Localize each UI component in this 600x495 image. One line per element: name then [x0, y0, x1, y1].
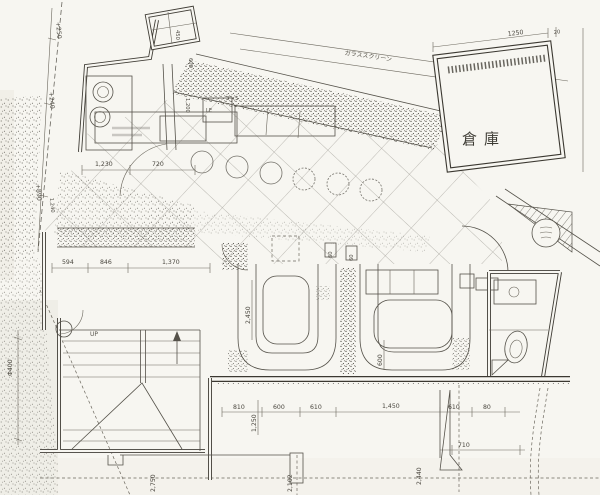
up-label: UP	[90, 331, 98, 338]
dim-2440: 2,440	[416, 467, 423, 485]
dim-600c: 600	[273, 404, 285, 411]
dim-1230: 1,230	[95, 161, 113, 168]
size-label: 3'×5	[226, 96, 238, 102]
dim-plus250: +250	[54, 22, 62, 40]
floor-plan-svg: LE 3'×5 ガラススクリーン 倉庫	[0, 0, 600, 495]
dim-plus240: +240	[47, 92, 55, 110]
warehouse-label: 倉庫	[462, 130, 506, 148]
dim-1250b: 1,250	[251, 414, 258, 432]
dim-610a: 610	[310, 404, 322, 411]
dim-2750: 2,750	[150, 474, 157, 492]
dim-1200: 1,200	[184, 98, 190, 113]
dim-20: 20	[554, 29, 561, 36]
dim-720: 720	[152, 161, 164, 168]
dim-1370: 1,370	[162, 259, 180, 266]
dim-1450: 1,450	[382, 403, 400, 410]
dim-450: 450	[174, 30, 180, 40]
dim-60b: 60	[349, 254, 355, 261]
dim-810: 810	[233, 404, 245, 411]
dim-610b: 610	[448, 404, 460, 411]
dim-phi400: Φ400	[7, 359, 14, 376]
dim-594: 594	[62, 259, 74, 266]
dim-2102: 2,102	[287, 474, 294, 492]
dim-2450: 2,450	[245, 306, 252, 324]
scanned-floor-plan: LE 3'×5 ガラススクリーン 倉庫	[0, 0, 600, 495]
dim-80: 80	[483, 404, 491, 411]
dim-600b: 600	[377, 354, 384, 366]
dim-plus890: +890	[34, 184, 42, 202]
column-hatched	[340, 268, 356, 374]
dim-600a: 600	[187, 58, 193, 68]
dim-60a: 60	[328, 251, 334, 258]
le-label: LE	[206, 108, 212, 114]
dim-846: 846	[100, 259, 112, 266]
dim-710: 710	[458, 442, 470, 449]
